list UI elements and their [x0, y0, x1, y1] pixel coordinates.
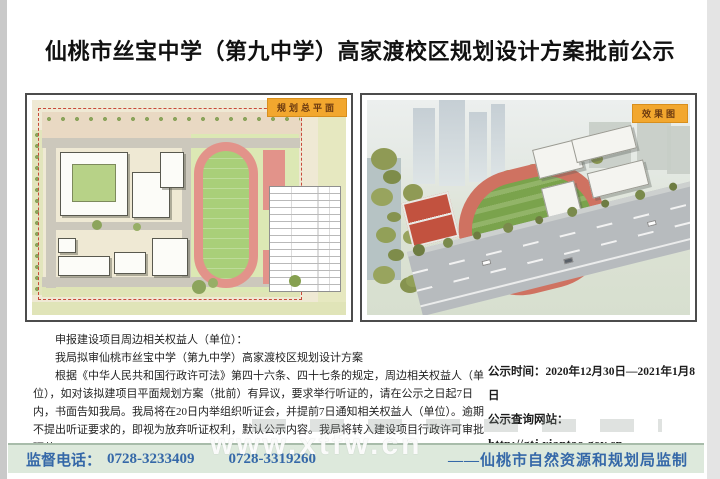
notice-line-1: 申报建设项目周边相关权益人（单位）：	[33, 331, 485, 349]
photo-edge-left	[0, 0, 7, 479]
neighborhood-building	[667, 126, 690, 174]
site-plan-graphic	[32, 100, 346, 315]
notice-poster: 仙桃市丝宝中学（第九中学）高家渡校区规划设计方案批前公示 规划总平面	[0, 0, 720, 479]
producer-label: ——仙桃市自然资源和规划局监制	[448, 449, 688, 470]
rendering-panel: 效果图	[360, 93, 697, 322]
site-plan-badge: 规划总平面	[267, 98, 347, 117]
city-tower	[469, 112, 487, 182]
car	[563, 257, 573, 264]
city-tower	[439, 100, 465, 186]
site-plan-panel: 规划总平面	[25, 93, 353, 322]
site-boundary-line	[38, 108, 302, 300]
supervision-phone-1: 0728-3233409	[107, 451, 195, 468]
publicity-info: 公示时间：2020年12月30日—2021年1月8日 公示查询网站： http:…	[488, 360, 703, 456]
city-tower	[413, 108, 435, 184]
photo-edge-right	[707, 0, 720, 479]
page-title: 仙桃市丝宝中学（第九中学）高家渡校区规划设计方案批前公示	[20, 34, 700, 66]
water-body	[367, 158, 401, 280]
tree-cluster	[371, 148, 397, 170]
website-watermark: www.xtfw.cn	[210, 428, 422, 462]
supervision-phone-label: 监督电话：	[26, 449, 101, 470]
car	[481, 259, 491, 266]
notice-line-2: 我局拟审仙桃市丝宝中学（第九中学）高家渡校区规划设计方案	[33, 349, 485, 367]
economic-indicator-table	[269, 186, 341, 292]
car	[647, 220, 657, 227]
rendering-badge: 效果图	[632, 104, 688, 123]
publicity-time: 公示时间：2020年12月30日—2021年1月8日	[488, 360, 703, 408]
aerial-rendering-graphic	[367, 100, 690, 315]
city-tower	[491, 104, 505, 180]
